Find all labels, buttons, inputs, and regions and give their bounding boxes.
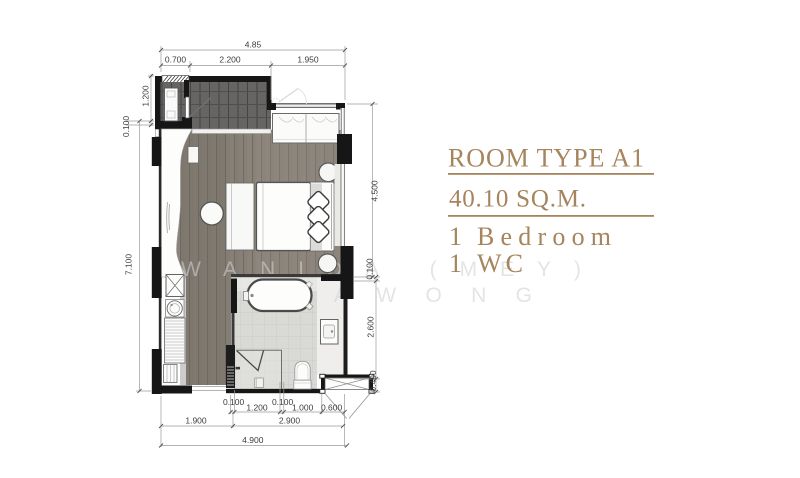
svg-text:40.10 SQ.M.: 40.10 SQ.M. (449, 186, 586, 213)
svg-text:0.700: 0.700 (165, 55, 187, 65)
svg-text:0.100: 0.100 (121, 116, 131, 138)
svg-text:1.950: 1.950 (297, 55, 319, 65)
svg-text:ROOM TYPE A1: ROOM TYPE A1 (448, 144, 644, 173)
svg-text:7.100: 7.100 (124, 254, 134, 276)
svg-text:0.100: 0.100 (272, 397, 294, 407)
svg-text:1.200: 1.200 (141, 85, 151, 107)
svg-text:4.900: 4.900 (242, 435, 264, 445)
svg-text:1.000: 1.000 (292, 403, 314, 413)
svg-text:0.400: 0.400 (368, 370, 378, 392)
svg-text:1: 1 (449, 249, 462, 278)
svg-text:0.600: 0.600 (321, 403, 343, 413)
svg-text:0.100: 0.100 (365, 258, 375, 280)
svg-text:4.500: 4.500 (370, 180, 380, 202)
svg-text:4.85: 4.85 (245, 40, 262, 50)
svg-text:1.900: 1.900 (185, 416, 207, 426)
svg-text:0.100: 0.100 (223, 397, 245, 407)
svg-text:2.600: 2.600 (366, 316, 376, 338)
svg-text:1: 1 (449, 222, 462, 251)
svg-text:1.200: 1.200 (246, 403, 268, 413)
svg-text:2.200: 2.200 (219, 55, 241, 65)
svg-text:WC: WC (477, 249, 523, 278)
svg-text:2.900: 2.900 (279, 416, 301, 426)
